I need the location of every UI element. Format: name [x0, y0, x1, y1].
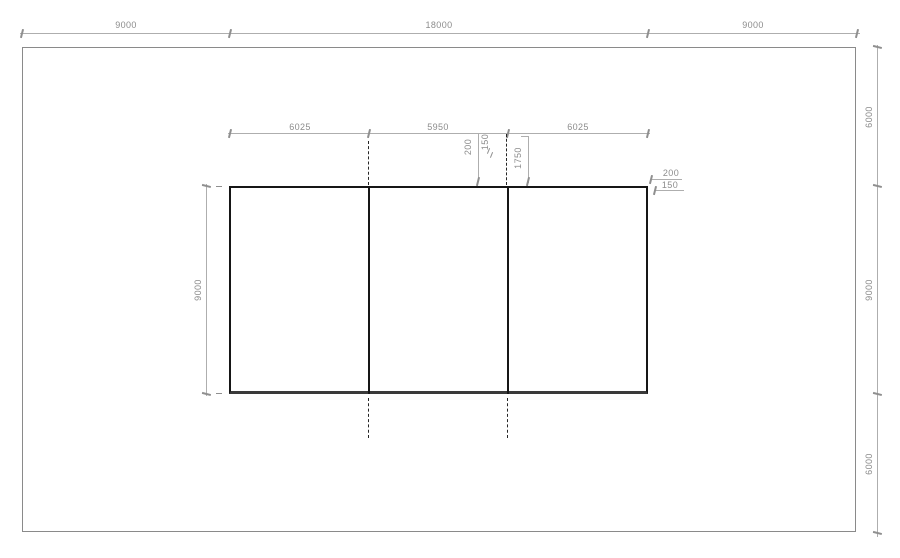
dim-label-span-1750: 1750 [513, 147, 523, 169]
dim-label-corner-150: 150 [662, 180, 678, 190]
column-grid-line [368, 186, 370, 394]
dim-label-building-height: 9000 [193, 279, 203, 301]
extension-line [528, 136, 529, 183]
dimension-line [654, 190, 684, 191]
dim-label-corner-200: 200 [663, 168, 679, 178]
dim-label-bay-right: 6025 [567, 122, 589, 132]
dim-label-right-top: 6000 [864, 106, 874, 128]
dim-label-top-left: 9000 [115, 20, 137, 30]
grid-centerline-dashed [368, 398, 369, 438]
dimension-line [206, 184, 207, 396]
dim-label-bay-middle: 5950 [427, 122, 449, 132]
grid-centerline-dashed [368, 141, 369, 185]
witness-mark [216, 393, 222, 394]
dimension-line [20, 33, 860, 34]
grid-centerline-dashed [507, 398, 508, 438]
cad-drawing-canvas: 9000 18000 9000 6000 9000 6000 6025 5950… [0, 0, 900, 558]
dimension-line [228, 133, 650, 134]
leader-hook [521, 136, 529, 137]
dim-label-top-right: 9000 [742, 20, 764, 30]
witness-mark [216, 186, 222, 187]
dim-label-bay-left: 6025 [289, 122, 311, 132]
dim-label-top-middle: 18000 [425, 20, 452, 30]
extension-line [478, 133, 479, 182]
dimension-line [877, 45, 878, 537]
dim-label-right-bottom: 6000 [864, 453, 874, 475]
grid-centerline-dashed [506, 134, 507, 185]
dim-label-offset-200: 200 [463, 139, 473, 155]
column-grid-line [507, 186, 509, 394]
dim-label-right-middle: 9000 [864, 279, 874, 301]
building-outline-rect [229, 186, 648, 394]
